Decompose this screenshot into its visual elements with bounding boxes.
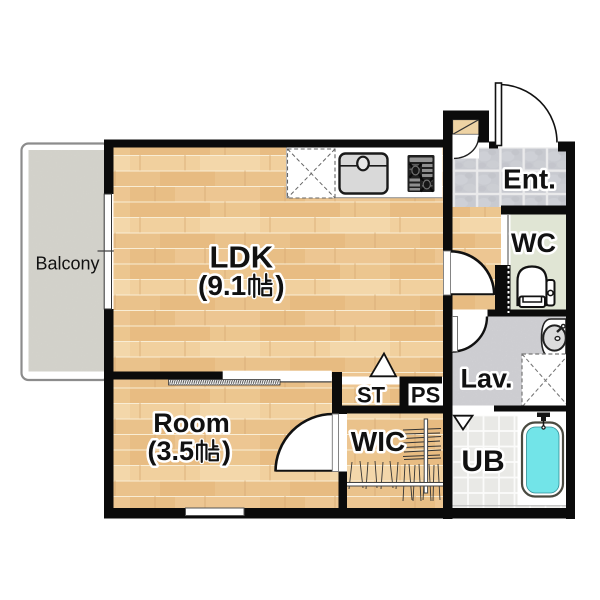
- svg-text:WC: WC: [511, 228, 556, 258]
- svg-text:Lav.: Lav.: [460, 363, 512, 393]
- svg-text:PS: PS: [411, 383, 440, 408]
- svg-text:(9.1: (9.1: [198, 270, 246, 301]
- svg-text:UB: UB: [461, 445, 504, 478]
- svg-text:Ent.: Ent.: [503, 164, 556, 195]
- svg-text:(3.5: (3.5: [148, 436, 195, 466]
- svg-text:Room: Room: [153, 408, 230, 438]
- svg-text:Balcony: Balcony: [35, 254, 99, 274]
- svg-text:): ): [222, 436, 231, 466]
- svg-text:ST: ST: [357, 383, 386, 408]
- svg-text:): ): [275, 270, 284, 301]
- svg-text:WIC: WIC: [351, 426, 405, 457]
